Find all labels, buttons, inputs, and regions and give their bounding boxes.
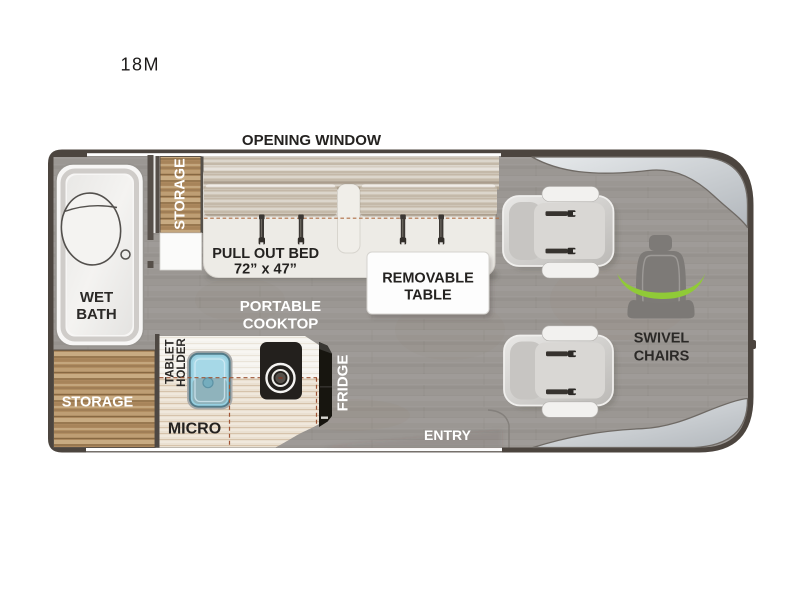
svg-text:PULL OUT BED: PULL OUT BED xyxy=(212,246,319,262)
svg-text:PORTABLE: PORTABLE xyxy=(240,298,321,315)
svg-text:STORAGE: STORAGE xyxy=(62,395,134,411)
svg-text:COOKTOP: COOKTOP xyxy=(243,316,319,333)
svg-text:ENTRY: ENTRY xyxy=(424,427,472,443)
svg-text:MICRO: MICRO xyxy=(168,421,221,438)
svg-text:BATH: BATH xyxy=(76,306,117,323)
svg-text:FRIDGE: FRIDGE xyxy=(335,355,352,412)
svg-text:CHAIRS: CHAIRS xyxy=(634,348,690,364)
svg-text:SWIVEL: SWIVEL xyxy=(634,330,690,346)
svg-text:STORAGE: STORAGE xyxy=(173,158,189,230)
svg-text:72” x 47”: 72” x 47” xyxy=(234,262,297,278)
svg-text:WET: WET xyxy=(80,289,113,306)
svg-text:HOLDER: HOLDER xyxy=(176,338,188,387)
svg-text:REMOVABLE: REMOVABLE xyxy=(382,271,474,287)
svg-text:OPENING WINDOW: OPENING WINDOW xyxy=(242,132,382,149)
svg-text:18M: 18M xyxy=(121,55,161,75)
svg-text:TABLE: TABLE xyxy=(404,288,452,304)
